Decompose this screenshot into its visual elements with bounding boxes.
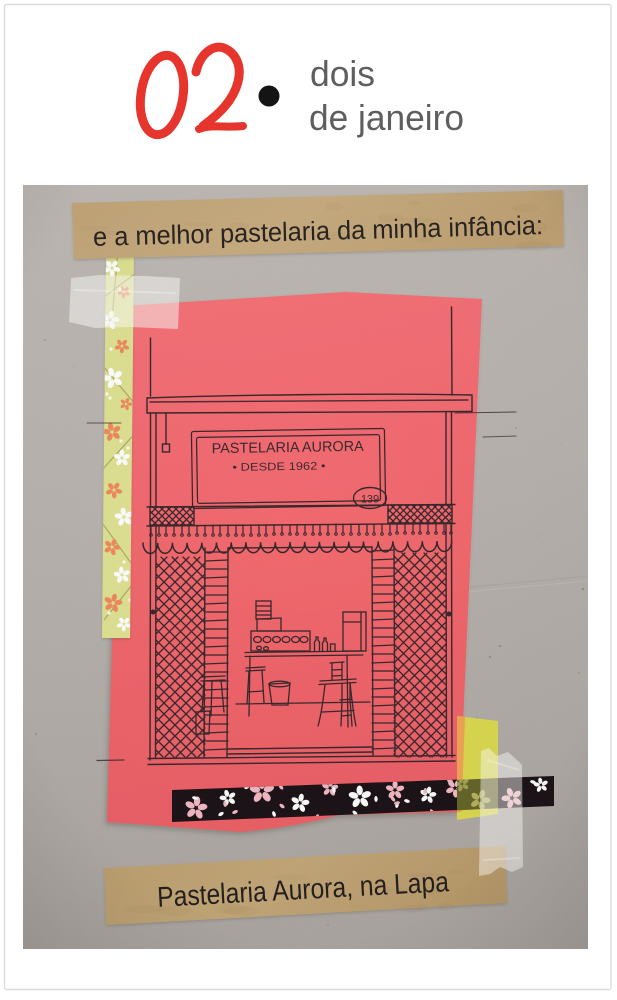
svg-text:dois: dois <box>310 53 375 94</box>
svg-text:de janeiro: de janeiro <box>309 97 464 138</box>
